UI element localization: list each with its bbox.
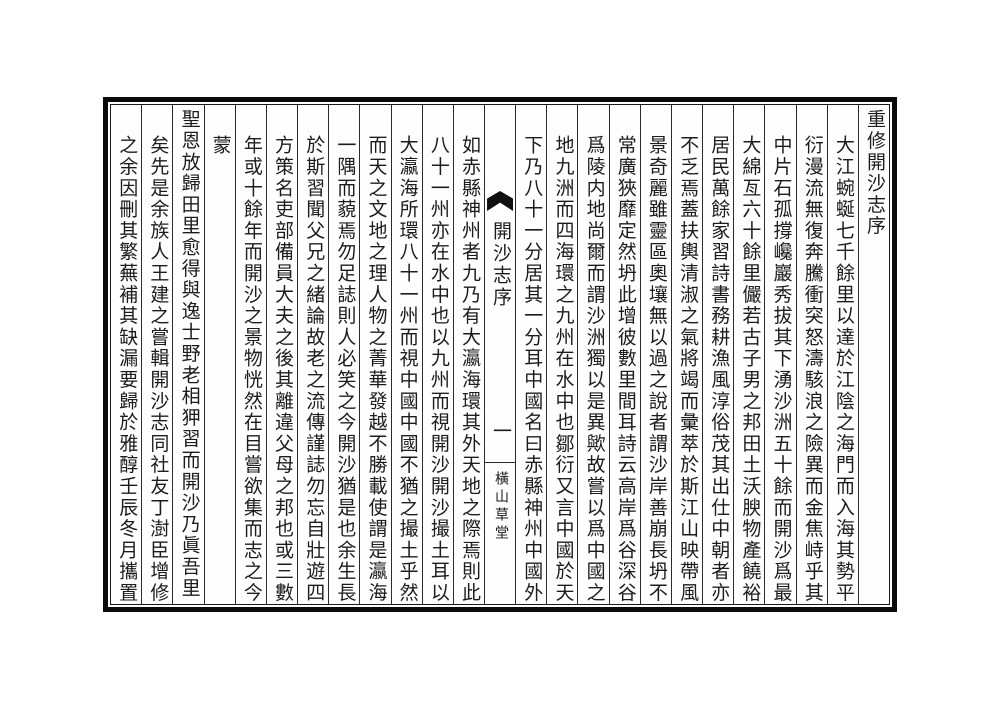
text-column: 不乏焉蓋扶輿清淑之氣將竭而彙萃於斯江山映帶風 (671, 105, 702, 604)
text-column: 於斯習聞父兄之緒論故老之流傳謹誌勿忘自壯遊四 (297, 105, 328, 604)
banxin-column: 開沙志序 一 橫山草堂 (484, 105, 515, 604)
text-column: 如赤縣神州者九乃有大瀛海環其外天地之際焉則此 (453, 105, 484, 604)
text-column: 下乃八十一分居其一分耳中國名曰赤縣神州中國外 (515, 105, 546, 604)
page-number: 一 (485, 421, 515, 440)
text-column: 矣先是余族人王建之嘗輯開沙志同社友丁澍臣增修 (141, 105, 172, 604)
banxin-divider (485, 462, 515, 463)
text-column: 大江蜿蜒七千餘里以達於江陰之海門而入海其勢平 (827, 105, 858, 604)
text-column: 而天之文地之理人物之菁華發越不勝載使謂是瀛海 (359, 105, 390, 604)
text-column: 一隅而藐焉勿足誌則人必笑之今開沙猶是也余生長 (328, 105, 359, 604)
publisher-name: 橫山草堂 (485, 471, 515, 543)
text-column: 常廣狹靡定然坍此增彼數里間耳詩云高岸爲谷深谷 (609, 105, 640, 604)
text-column: 大瀛海所環八十一州而視中國中國不猶之撮土乎然 (391, 105, 422, 604)
text-column: 居民萬餘家習詩書務耕漁風淳俗茂其出仕中朝者亦 (702, 105, 733, 604)
text-column: 爲陵内地尚爾而謂沙洲獨以是異歟故嘗以爲中國之 (577, 105, 608, 604)
text-column: 中片石孤撐巉巖秀拔其下湧沙洲五十餘而開沙爲最 (764, 105, 795, 604)
text-column: 衍漫流無復奔騰衝突怒濤駭浪之險異而金焦峙乎其 (796, 105, 827, 604)
page-border-frame: 重修開沙志序 大江蜿蜒七千餘里以達於江陰之海門而入海其勢平 衍漫流無復奔騰衝突怒… (103, 97, 897, 612)
honorific-raised-column: 聖恩放歸田里愈得與逸士野老相狎習而開沙乃眞吾里 (172, 105, 203, 604)
text-column: 方策名吏部備員大夫之後其離違父母之邦也或三數 (266, 105, 297, 604)
fishtail-icon (487, 191, 513, 211)
single-char-column: 蒙 (204, 105, 235, 604)
text-column: 八十一州亦在水中也以九州而視開沙開沙撮土耳以 (422, 105, 453, 604)
scanned-book-page: 重修開沙志序 大江蜿蜒七千餘里以達於江陰之海門而入海其勢平 衍漫流無復奔騰衝突怒… (0, 0, 1000, 706)
title-column: 重修開沙志序 (858, 105, 889, 604)
text-block: 重修開沙志序 大江蜿蜒七千餘里以達於江陰之海門而入海其勢平 衍漫流無復奔騰衝突怒… (110, 104, 890, 605)
text-column: 之余因刪其繁蕪補其缺漏要歸於雅醇壬辰冬月攜置 (111, 105, 141, 604)
text-column: 大綿亙六十餘里儼若古子男之邦田土沃腴物產饒裕 (733, 105, 764, 604)
banxin-title: 開沙志序 (485, 221, 515, 309)
text-column: 地九洲而四海環之九州在水中也鄒衍又言中國於天 (546, 105, 577, 604)
text-column: 景奇麗雖靈區奧壤無以過之說者謂沙岸善崩長坍不 (640, 105, 671, 604)
text-column: 年或十餘年而開沙之景物恍然在目嘗欲集而志之今 (235, 105, 266, 604)
